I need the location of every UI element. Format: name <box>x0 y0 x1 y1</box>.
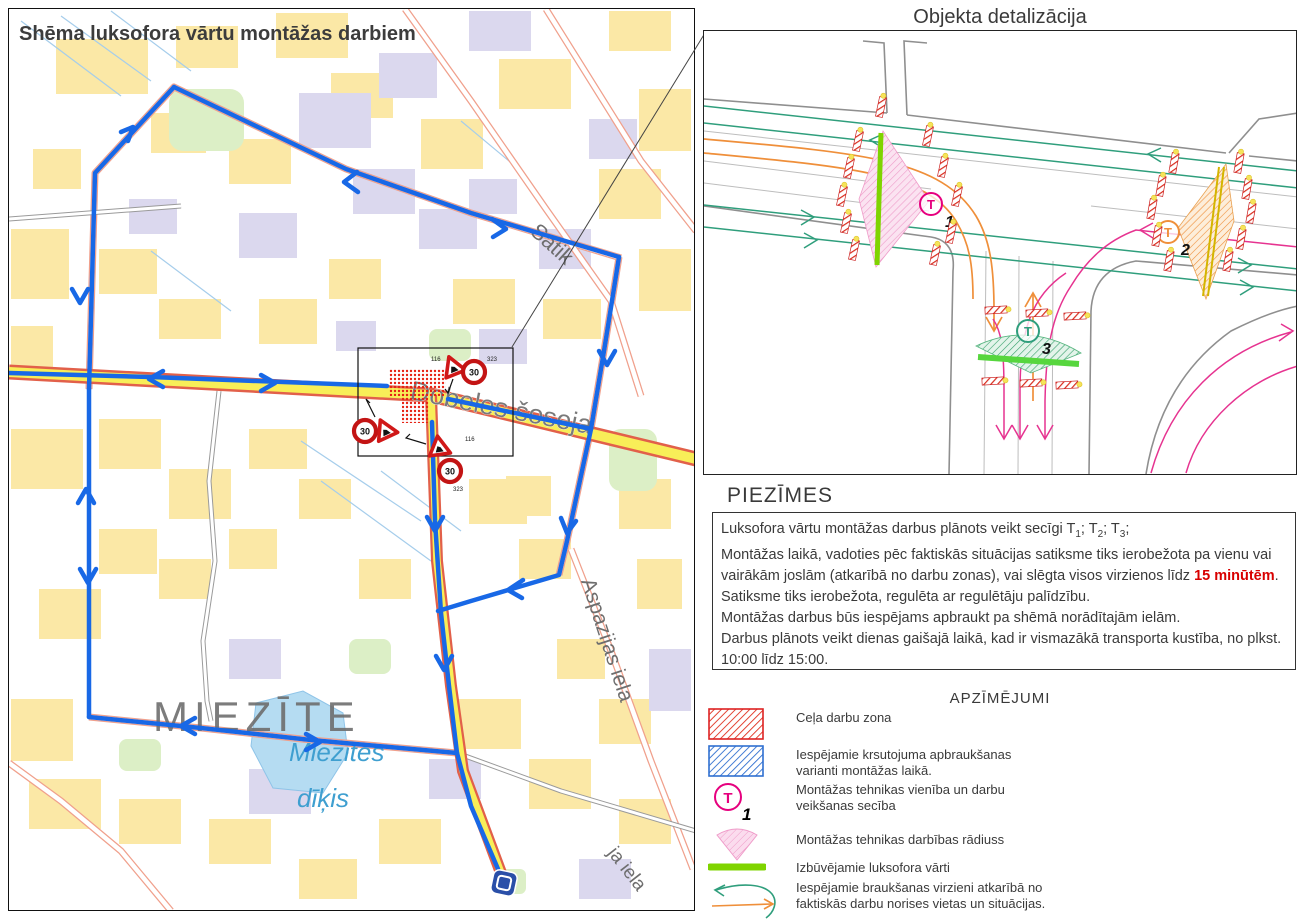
map-marker-icon <box>490 869 518 897</box>
legend-item-gate: Izbūvējamie luksofora vārti <box>708 860 950 879</box>
speed-limit-sign-icon <box>463 361 485 383</box>
unit-symbol: T 1 <box>708 780 796 827</box>
notes-heading: PIEZĪMES <box>727 484 833 508</box>
detail-panel: T 1 T 2 T 3 <box>703 30 1297 475</box>
notes-line-2: Montāžas laikā, vadoties pēc faktiskās s… <box>721 545 1287 587</box>
sign-code: 116 <box>465 437 475 443</box>
work-unit-zone-2: T 2 <box>1157 164 1234 299</box>
unit-letter: T <box>1024 324 1032 339</box>
unit-letter: T <box>1164 225 1172 240</box>
notes-line-3: Satiksme tiks ierobežota, regulēta ar re… <box>721 587 1287 608</box>
legend-item-directions: Iespējamie braukšanas virzieni atkarībā … <box>708 878 1045 919</box>
legend-unit-number: 1 <box>742 805 751 822</box>
legend-item-detour: Iespējamie krsutojuma apbraukšanasvarian… <box>708 745 1011 783</box>
legend-unit-letter: T <box>723 790 732 807</box>
detail-lane-lines <box>704 131 1296 474</box>
map-title: Shēma luksofora vārtu montāžas darbiem <box>19 23 416 46</box>
work-zone-swatch <box>708 708 796 746</box>
legend-item-work-zone: Ceļa darbu zona <box>708 708 891 746</box>
pond-label-2: dīķis <box>297 783 349 813</box>
speed-limit-sign-icon <box>354 420 376 442</box>
map-panel: MIEZĪTE Miezītes dīķis Dobeles šoseja Sa… <box>8 8 695 911</box>
notes-line-1: Luksofora vārtu montāžas darbus plānots … <box>721 519 1287 545</box>
unit-letter: T <box>927 197 935 212</box>
legend-heading: APZĪMĒJUMI <box>703 690 1297 707</box>
gate-symbol <box>708 860 796 879</box>
notes-line-4: Montāžas darbus būs iespējams apbraukt p… <box>721 608 1287 629</box>
speed-limit-sign-icon <box>439 460 461 482</box>
city-map: MIEZĪTE Miezītes dīķis Dobeles šoseja Sa… <box>9 9 694 910</box>
directions-symbol <box>708 878 796 919</box>
notes-line-5: Darbus plānots veikt dienas gaišajā laik… <box>721 629 1287 671</box>
notes-box: Luksofora vārtu montāžas darbus plānots … <box>712 512 1296 670</box>
detail-panel-title: Objekta detalizācija <box>703 6 1297 29</box>
sign-code: 116 <box>431 357 441 363</box>
intersection-detail: T 1 T 2 T 3 <box>704 31 1296 474</box>
sign-code: 323 <box>487 357 498 363</box>
notes-highlight: 15 minūtēm <box>1194 568 1275 584</box>
traffic-scheme-document: MIEZĪTE Miezītes dīķis Dobeles šoseja Sa… <box>0 0 1302 919</box>
unit-number-2: 2 <box>1180 242 1190 259</box>
sign-code: 323 <box>453 487 464 493</box>
detour-swatch <box>708 745 796 783</box>
unit-number-3: 3 <box>1042 341 1051 358</box>
legend-item-unit: T 1 Montāžas tehnikas vienība un darbuve… <box>708 780 1005 827</box>
